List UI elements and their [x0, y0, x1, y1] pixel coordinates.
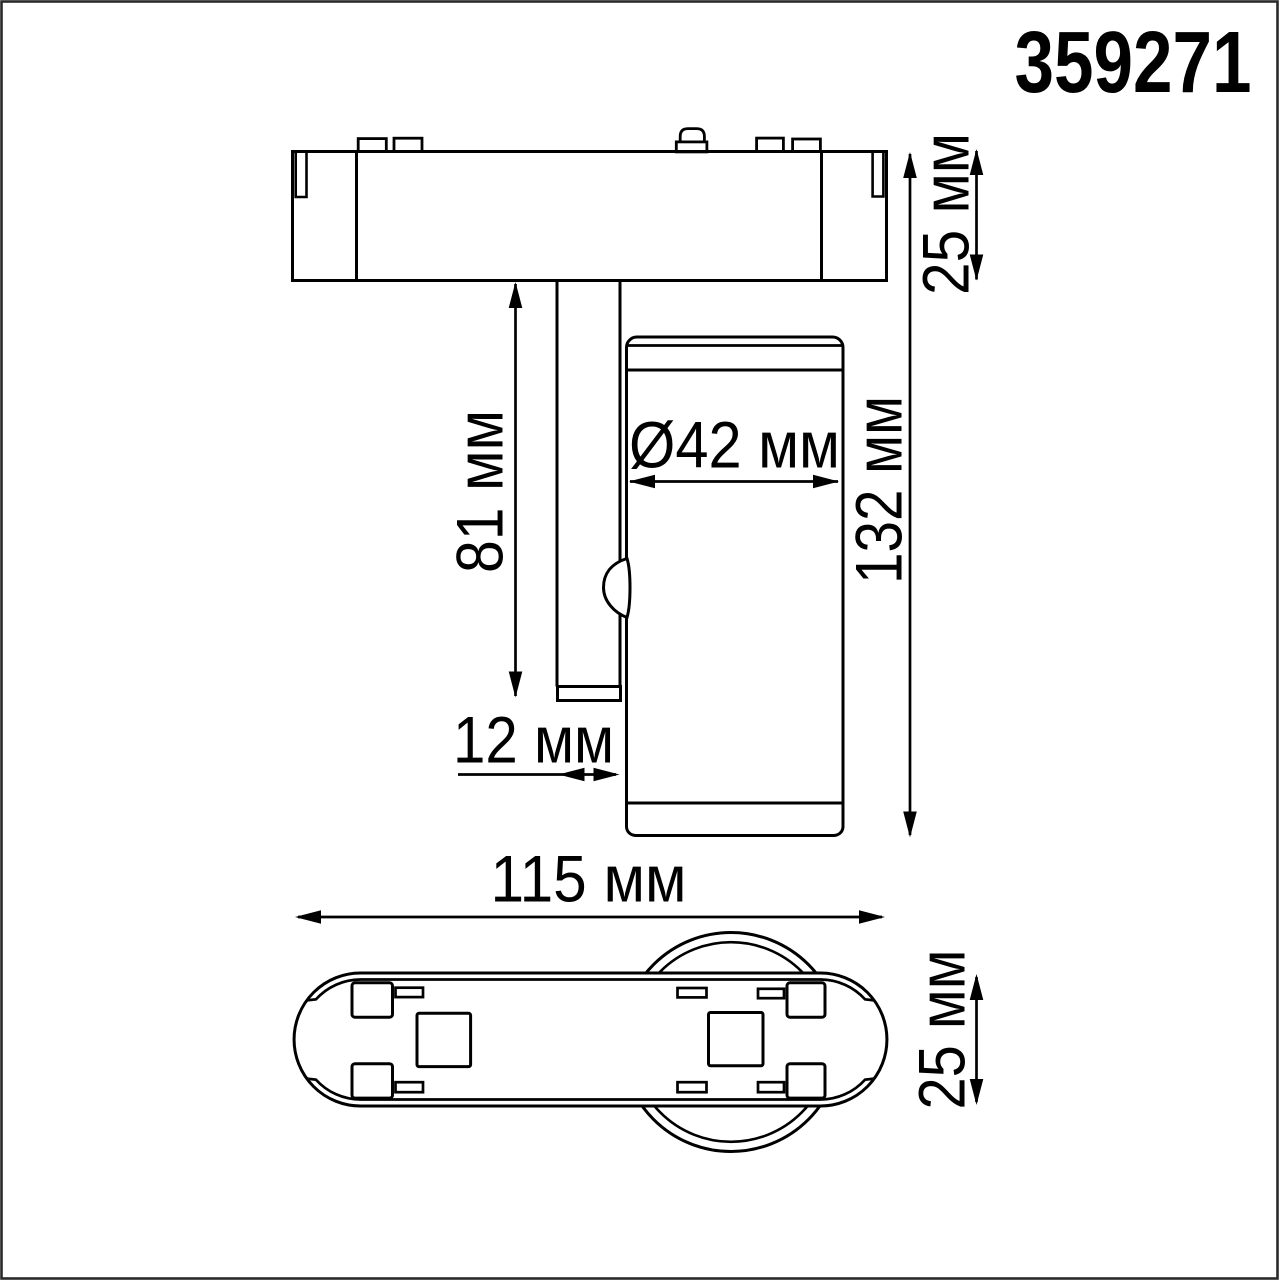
svg-text:115 мм: 115 мм [491, 842, 687, 916]
svg-text:12 мм: 12 мм [453, 703, 614, 777]
svg-text:359271: 359271 [1015, 14, 1252, 111]
svg-text:81 мм: 81 мм [443, 410, 517, 573]
svg-text:132 мм: 132 мм [842, 396, 916, 584]
svg-text:Ø42 мм: Ø42 мм [629, 408, 840, 482]
svg-text:25 мм: 25 мм [909, 133, 983, 295]
svg-text:25 мм: 25 мм [905, 950, 979, 1110]
